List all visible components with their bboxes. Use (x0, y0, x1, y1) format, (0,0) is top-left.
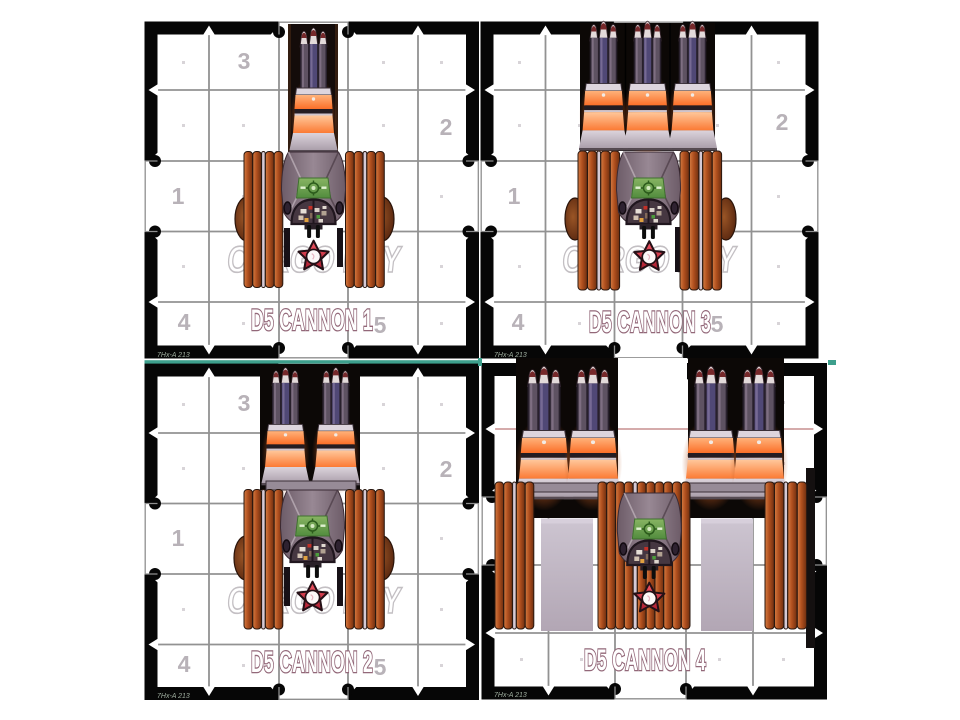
svg-text:7Hx-A 213: 7Hx-A 213 (494, 692, 527, 699)
svg-text:5: 5 (374, 312, 387, 338)
svg-text:1: 1 (172, 183, 185, 209)
svg-text:4: 4 (178, 651, 191, 677)
svg-text:D5 CANNON 4: D5 CANNON 4 (584, 644, 706, 677)
svg-text:7Hx-A 213: 7Hx-A 213 (157, 352, 190, 359)
svg-text:D5 CANNON 2: D5 CANNON 2 (251, 646, 373, 679)
svg-text:1: 1 (508, 183, 521, 209)
svg-text:5: 5 (711, 311, 724, 337)
svg-text:2: 2 (776, 109, 789, 135)
svg-text:3: 3 (238, 390, 251, 416)
svg-text:D5 CANNON 1: D5 CANNON 1 (251, 304, 373, 337)
svg-text:3: 3 (238, 48, 251, 74)
svg-text:1: 1 (172, 525, 185, 551)
svg-text:4: 4 (512, 309, 525, 335)
svg-text:5: 5 (374, 654, 387, 680)
svg-text:4: 4 (178, 309, 191, 335)
svg-text:2: 2 (440, 114, 453, 140)
svg-text:D5 CANNON 3: D5 CANNON 3 (589, 306, 711, 339)
svg-text:7Hx-A 213: 7Hx-A 213 (494, 352, 527, 359)
svg-text:7Hx-A 213: 7Hx-A 213 (157, 693, 190, 700)
svg-text:2: 2 (440, 456, 453, 482)
